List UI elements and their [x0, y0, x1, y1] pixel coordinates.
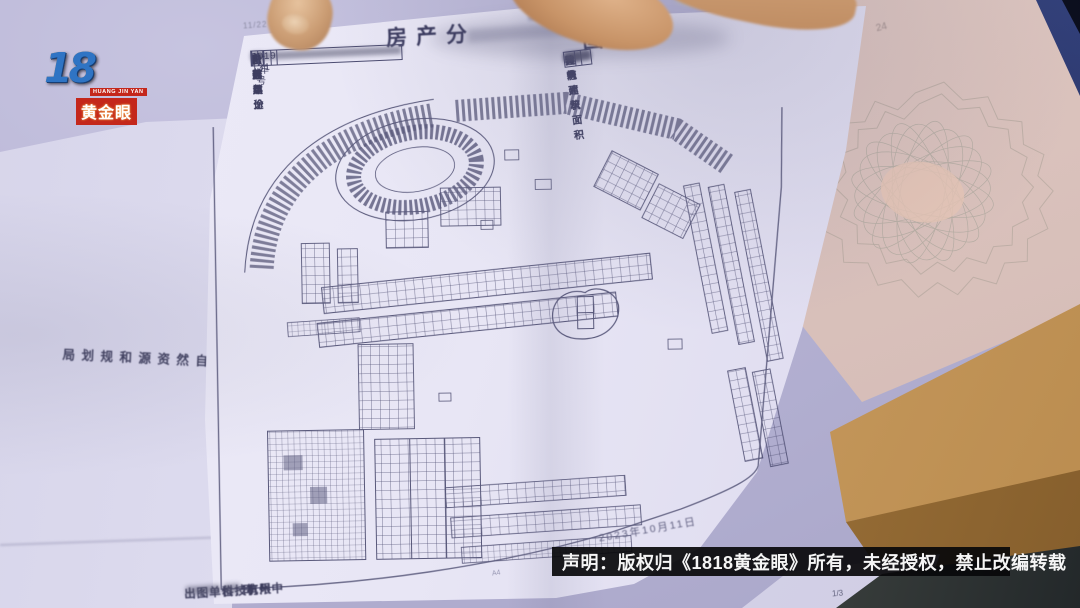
blurred-text	[224, 584, 241, 594]
page-number: 1/3	[832, 589, 844, 599]
copyright-bar: 声明：版权归《1818黄金眼》所有，未经授权，禁止改编转载	[552, 547, 1010, 576]
paper-size-note: A4	[492, 569, 502, 577]
channel-logo: 1818 HUANG JIN YAN 黄金眼	[44, 48, 154, 134]
cell-value: 1-131号	[250, 50, 272, 67]
floorplan-drawing	[204, 87, 813, 597]
document-footer: 出图单位：杭州中科技有限司	[184, 582, 243, 598]
footer-suffix: 司	[242, 581, 255, 598]
logo-18-blue: 18	[44, 48, 93, 89]
logo-romanized: HUANG JIN YAN	[90, 88, 147, 96]
tv-frame: 24 1/3 县自然资源和规划局 11/22 16: 房产分 图 坐 落 设计用…	[0, 0, 1080, 608]
logo-name: 黄金眼	[76, 98, 137, 125]
copyright-text: 声明：版权归《1818黄金眼》所有，未经授权，禁止改编转载	[562, 549, 1067, 575]
